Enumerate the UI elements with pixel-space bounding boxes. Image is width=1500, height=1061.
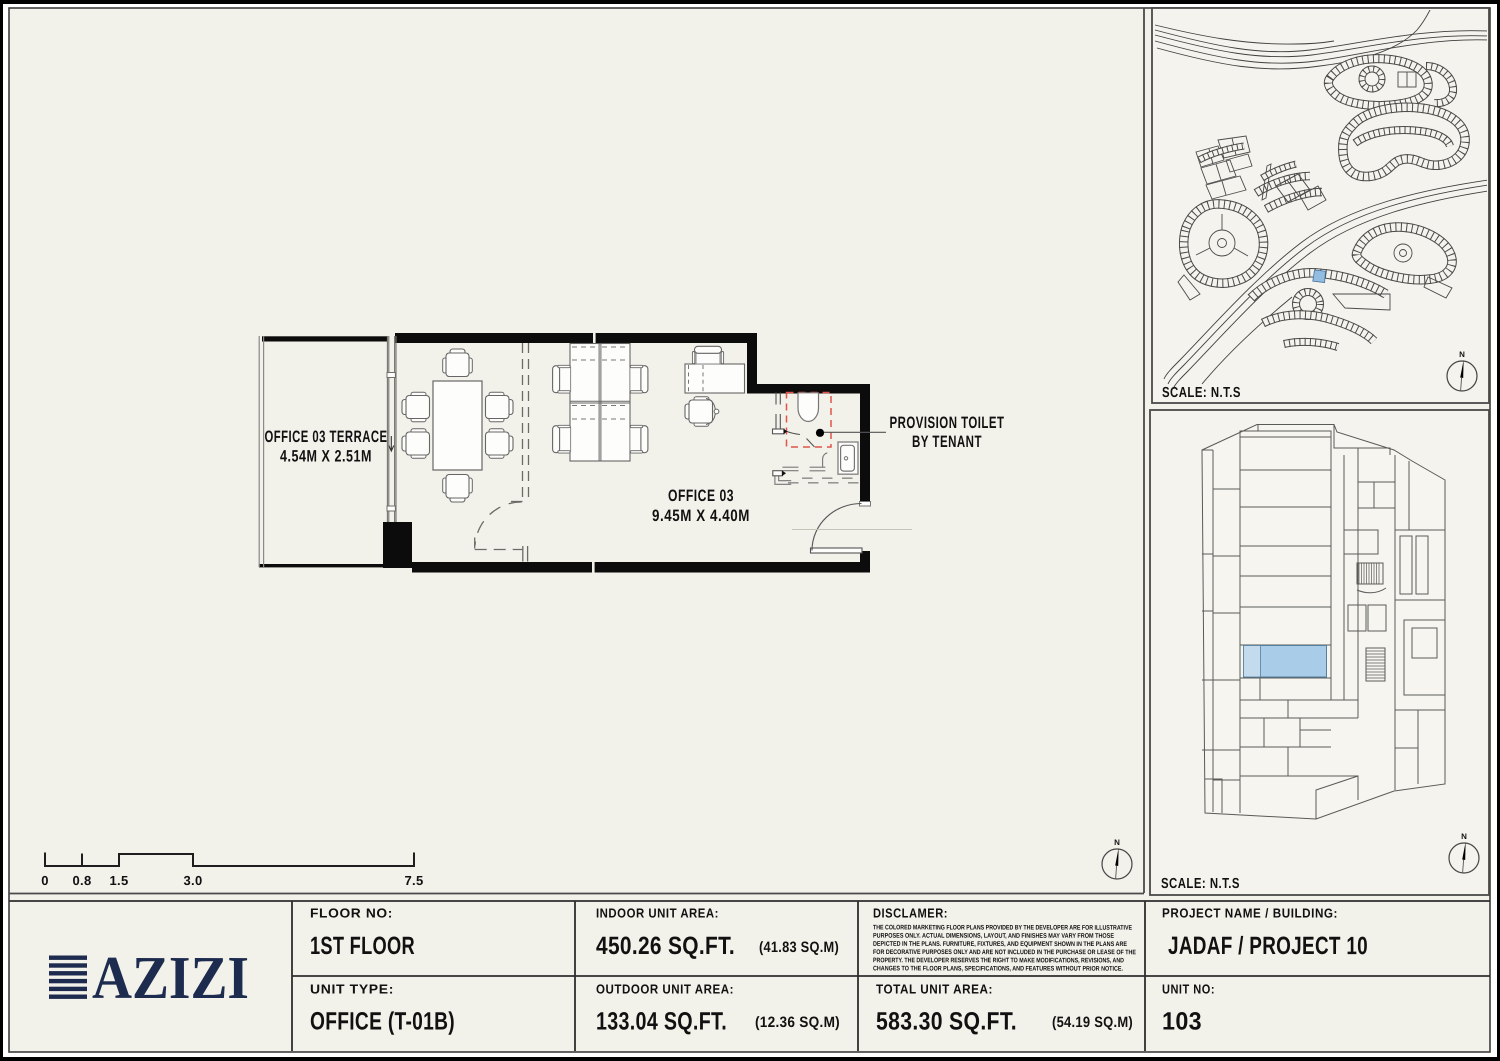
svg-text:3.0: 3.0 xyxy=(184,873,203,888)
svg-text:SCALE: N.T.S: SCALE: N.T.S xyxy=(1161,876,1240,892)
svg-text:AZIZI: AZIZI xyxy=(92,945,249,1012)
svg-text:PROVISION TOILET: PROVISION TOILET xyxy=(889,414,1004,432)
svg-text:FLOOR NO:: FLOOR NO: xyxy=(310,905,393,920)
svg-text:583.30 SQ.FT.: 583.30 SQ.FT. xyxy=(876,1007,1017,1035)
svg-text:0: 0 xyxy=(41,873,49,888)
svg-text:(54.19 SQ.M): (54.19 SQ.M) xyxy=(1052,1014,1133,1031)
svg-text:SCALE: N.T.S: SCALE: N.T.S xyxy=(1162,385,1241,401)
svg-text:BY TENANT: BY TENANT xyxy=(912,433,982,451)
svg-text:450.26 SQ.FT.: 450.26 SQ.FT. xyxy=(596,932,735,960)
svg-text:1.5: 1.5 xyxy=(110,873,129,888)
svg-text:TOTAL UNIT AREA:: TOTAL UNIT AREA: xyxy=(876,981,993,996)
svg-text:OUTDOOR UNIT AREA:: OUTDOOR UNIT AREA: xyxy=(596,981,734,996)
svg-text:9.45M X 4.40M: 9.45M X 4.40M xyxy=(652,507,750,525)
svg-text:PROPERTY. THE DEVELOPER RESERV: PROPERTY. THE DEVELOPER RESERVES THE RIG… xyxy=(873,957,1124,964)
svg-text:INDOOR UNIT AREA:: INDOOR UNIT AREA: xyxy=(596,905,719,920)
svg-text:(12.36 SQ.M): (12.36 SQ.M) xyxy=(755,1014,840,1031)
svg-text:UNIT NO:: UNIT NO: xyxy=(1162,981,1215,996)
svg-text:THE COLORED MARKETING FLOOR PL: THE COLORED MARKETING FLOOR PLANS PROVID… xyxy=(873,924,1132,931)
svg-text:OFFICE (T-01B): OFFICE (T-01B) xyxy=(310,1007,455,1035)
svg-text:(41.83 SQ.M): (41.83 SQ.M) xyxy=(759,939,839,956)
svg-text:1ST FLOOR: 1ST FLOOR xyxy=(310,932,415,960)
svg-text:0.8: 0.8 xyxy=(73,873,92,888)
svg-text:PROJECT NAME / BUILDING:: PROJECT NAME / BUILDING: xyxy=(1162,905,1338,920)
svg-text:DISCLAMER:: DISCLAMER: xyxy=(873,905,948,920)
svg-text:JADAF / PROJECT 10: JADAF / PROJECT 10 xyxy=(1168,932,1368,960)
svg-text:CHANGES TO THE FLOOR PLANS, SP: CHANGES TO THE FLOOR PLANS, SPECIFICATIO… xyxy=(873,965,1123,972)
svg-text:7.5: 7.5 xyxy=(405,873,424,888)
svg-text:DEPICTED IN THE PLANS. FURNITU: DEPICTED IN THE PLANS. FURNITURE, FIXTUR… xyxy=(873,941,1127,948)
svg-text:OFFICE 03: OFFICE 03 xyxy=(668,487,734,505)
svg-text:4.54M X 2.51M: 4.54M X 2.51M xyxy=(280,447,372,465)
svg-text:103: 103 xyxy=(1162,1007,1202,1035)
svg-text:FOR DECORATIVE PURPOSES ONLY A: FOR DECORATIVE PURPOSES ONLY AND ARE NOT… xyxy=(873,949,1136,956)
svg-text:OFFICE 03 TERRACE: OFFICE 03 TERRACE xyxy=(264,428,387,446)
svg-text:133.04 SQ.FT.: 133.04 SQ.FT. xyxy=(596,1007,727,1035)
svg-text:UNIT TYPE:: UNIT TYPE: xyxy=(310,981,394,996)
svg-text:PURPOSES ONLY. ACTUAL DIMENSIO: PURPOSES ONLY. ACTUAL DIMENSIONS, LAYOUT… xyxy=(873,933,1114,940)
